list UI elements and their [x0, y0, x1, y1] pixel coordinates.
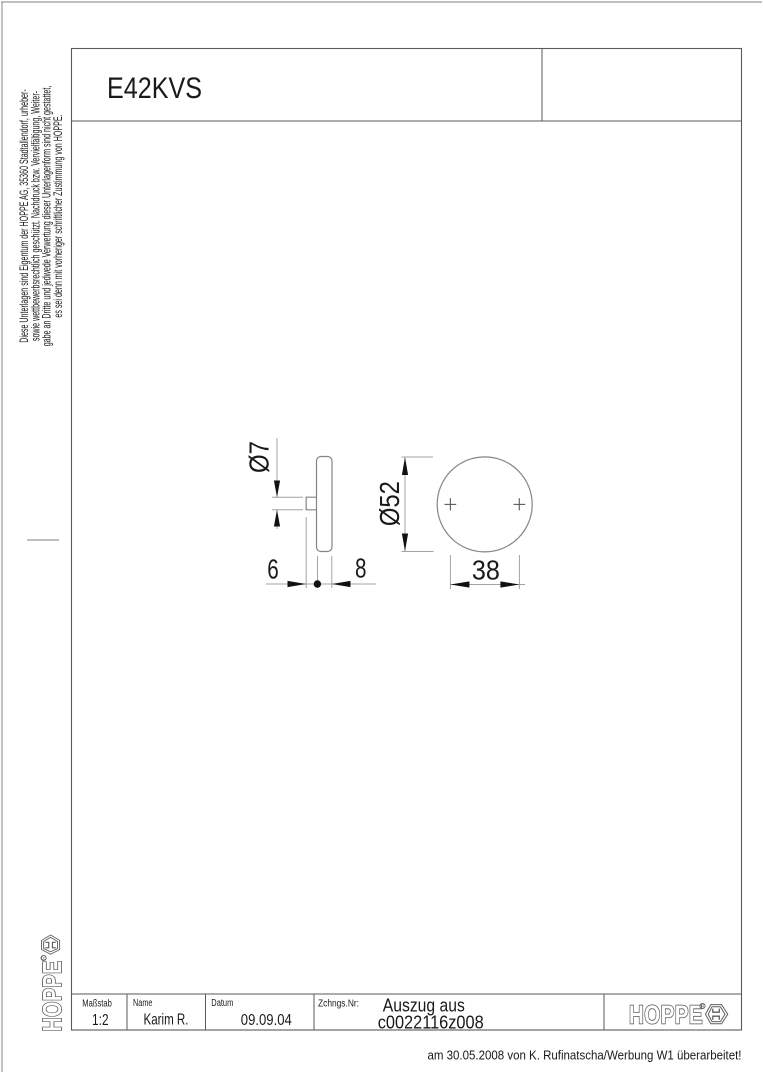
- svg-text:c0022116z008: c0022116z008: [378, 1013, 484, 1033]
- svg-text:Name: Name: [133, 998, 153, 1009]
- svg-text:E42KVS: E42KVS: [107, 72, 202, 105]
- svg-text:R: R: [701, 1004, 705, 1010]
- svg-text:09.09.04: 09.09.04: [241, 1012, 292, 1029]
- svg-text:6: 6: [267, 554, 279, 585]
- svg-text:Datum: Datum: [211, 998, 233, 1009]
- svg-text:am 30.05.2008 von K. Rufinatsc: am 30.05.2008 von K. Rufinatscha/Werbung…: [428, 1048, 742, 1063]
- svg-text:Maßstab: Maßstab: [82, 998, 112, 1009]
- svg-text:HOPPE: HOPPE: [629, 1002, 703, 1030]
- svg-text:R: R: [42, 956, 48, 960]
- svg-text:8: 8: [355, 553, 367, 584]
- svg-text:HOPPE: HOPPE: [39, 961, 67, 1032]
- svg-text:1:2: 1:2: [92, 1012, 109, 1029]
- svg-text:Ø7: Ø7: [243, 441, 274, 473]
- svg-text:38: 38: [472, 555, 500, 586]
- svg-text:es sei denn mit vorheriger sch: es sei denn mit vorheriger schriftlicher…: [52, 114, 65, 317]
- svg-text:Ø52: Ø52: [374, 481, 405, 526]
- svg-text:Karim R.: Karim R.: [144, 1012, 189, 1029]
- svg-text:Zchngs.Nr:: Zchngs.Nr:: [318, 998, 359, 1009]
